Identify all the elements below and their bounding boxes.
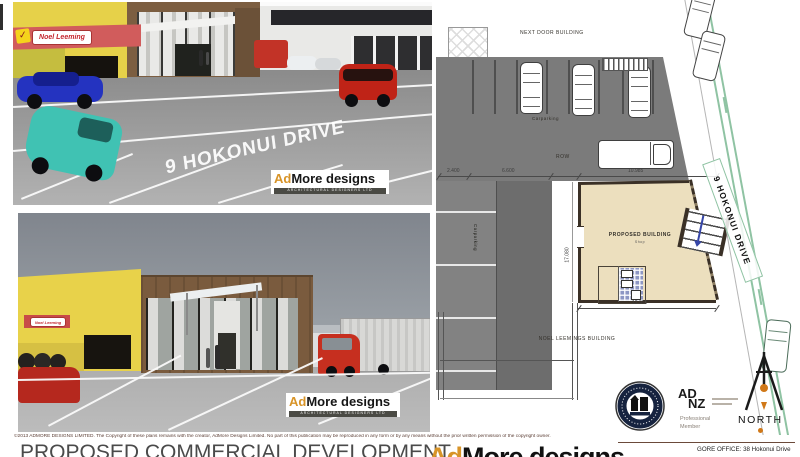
- existing-building-line: [440, 360, 574, 361]
- car-roof: [33, 72, 79, 86]
- bay-line: [546, 60, 548, 114]
- bay-divider: [436, 211, 496, 213]
- sheet-edge-tick: [0, 4, 3, 30]
- next-door-building-label: NEXT DOOR BUILDING: [520, 30, 584, 36]
- admore-watermark-more: More designs: [306, 394, 390, 409]
- noel-leeming-sign: Noel Leeming: [32, 30, 92, 45]
- stair-arrow-head: [693, 240, 702, 248]
- toilet-fixture: [631, 290, 641, 300]
- toilet-fixture: [621, 270, 633, 278]
- admore-watermark-ad: Ad: [274, 171, 291, 186]
- site-plan: NEXT DOOR BUILDING Carparking ROW: [432, 0, 800, 435]
- bay-line: [494, 60, 496, 114]
- stair-arrow: [697, 215, 704, 243]
- north-plumb-dot: [758, 428, 763, 433]
- licensed-building-practitioner-badge: [614, 380, 666, 432]
- copyright-notice: ©2013 ADMORE DESIGNS LIMITED. The Copyri…: [14, 434, 796, 439]
- person: [206, 348, 210, 368]
- adnz-rule: [712, 398, 738, 400]
- canopy-post: [256, 285, 258, 331]
- car-outline: [628, 66, 651, 118]
- ramp-hatch: [602, 58, 648, 71]
- existing-building-wall: [572, 303, 578, 400]
- dimension-tick: [714, 305, 719, 312]
- red-truck-small: [254, 40, 288, 68]
- truck-cab-outline: [653, 144, 671, 165]
- noel-leeming-check-icon: ✓: [15, 28, 31, 44]
- red-truck: [318, 318, 430, 376]
- car-outline: [572, 64, 595, 116]
- sheet-title: PROPOSED COMMERCIAL DEVELOPMENT: [20, 441, 451, 457]
- loading-door-opening: [84, 335, 131, 369]
- dimension-line: [578, 308, 716, 309]
- dimension-line-vertical: [572, 182, 573, 302]
- person: [206, 52, 209, 65]
- noel-leeming-sign-label: Noel Leeming: [39, 34, 85, 41]
- admore-logo-partial: AdMore designs: [428, 444, 624, 457]
- noel-leeming-sign: Noel Leeming: [30, 317, 66, 327]
- bay-divider: [436, 370, 496, 372]
- wheel: [344, 366, 355, 377]
- noel-leemings-building-label: NOEL LEEMINGS BUILDING: [512, 336, 642, 342]
- white-car-small: [287, 56, 317, 70]
- background-building-glazing: [271, 10, 432, 25]
- person: [215, 345, 220, 369]
- car-blue-sedan: [17, 72, 103, 106]
- bay-divider: [436, 264, 496, 266]
- wheel: [345, 94, 358, 107]
- canopy-post: [186, 293, 188, 335]
- truck-outline: [598, 140, 674, 169]
- admore-watermark: AdMore designs ARCHITECTURAL DESIGNERS L…: [286, 393, 400, 417]
- admore-watermark-sub: ARCHITECTURAL DESIGNERS LTD: [274, 188, 386, 194]
- existing-building-line: [440, 398, 574, 399]
- row-label: ROW: [556, 154, 570, 160]
- dimension-2400: 2.400: [447, 168, 460, 174]
- truck-windshield: [322, 338, 352, 350]
- office-address: GORE OFFICE: 38 Hokonui Drive: [697, 446, 791, 453]
- proposed-building-sublabel: Shop: [600, 240, 680, 244]
- adnz-nz: NZ: [688, 396, 705, 411]
- adnz-logo: AD NZ Professional Member: [678, 384, 748, 432]
- admore-logo-ad: Ad: [428, 442, 462, 457]
- adnz-member: Member: [680, 424, 700, 430]
- adnz-professional: Professional: [680, 416, 710, 422]
- entry-door: [218, 333, 236, 369]
- truck-divider: [650, 142, 651, 165]
- bay-line: [472, 60, 474, 114]
- door-opening: [577, 226, 584, 248]
- wheel: [377, 94, 390, 107]
- carparking-label: Carparking: [532, 116, 559, 121]
- admore-watermark-sub: ARCHITECTURAL DESIGNERS LTD: [289, 411, 397, 417]
- copyright-underline: [618, 442, 795, 443]
- toilet-fixture: [621, 280, 633, 288]
- admore-watermark-ad: Ad: [289, 394, 306, 409]
- carparking-vertical-label: Carparking: [473, 224, 478, 251]
- car-windows: [343, 69, 393, 81]
- proposed-building-label: PROPOSED BUILDING: [600, 232, 680, 238]
- dimension-10985: 10.985: [628, 168, 643, 174]
- bay-line: [652, 60, 654, 114]
- dimension-12920: 12.920: [632, 300, 647, 306]
- bay-line: [516, 60, 518, 114]
- person: [199, 50, 203, 66]
- admore-watermark: AdMore designs ARCHITECTURAL DESIGNERS L…: [271, 170, 389, 194]
- grey-car-small: [315, 58, 341, 70]
- car-red-minivan: [339, 64, 397, 106]
- car-outline: [520, 62, 543, 114]
- vehicle-body: [18, 367, 80, 403]
- bay-line: [568, 60, 570, 114]
- admore-logo-more: More designs: [462, 442, 624, 457]
- adnz-rule: [712, 403, 732, 405]
- render-top-perspective: ✓ Noel Leeming: [13, 2, 432, 205]
- existing-building-wall: [438, 312, 444, 400]
- render-bottom-perspective: Noel Leeming: [18, 213, 430, 432]
- admore-watermark-more: More designs: [291, 171, 375, 186]
- drawing-sheet: ✓ Noel Leeming: [0, 0, 800, 457]
- dimension-17080: 17.080: [565, 247, 571, 262]
- driveway-block: [497, 181, 552, 390]
- noel-leeming-sign-label: Noel Leeming: [35, 320, 61, 325]
- bay-divider: [436, 317, 496, 319]
- dimension-6600: 6.600: [502, 168, 515, 174]
- bay-line: [598, 60, 600, 114]
